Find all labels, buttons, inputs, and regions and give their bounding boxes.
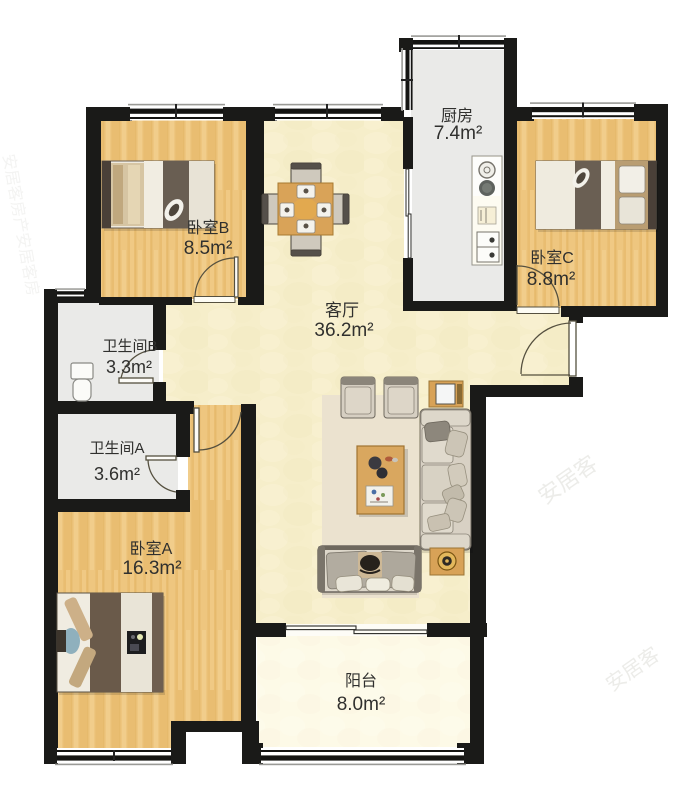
svg-text:36.2m²: 36.2m² xyxy=(314,320,373,341)
svg-text:8.5m²: 8.5m² xyxy=(184,238,233,259)
svg-text:16.3m²: 16.3m² xyxy=(122,558,181,579)
svg-text:卫生间B: 卫生间B xyxy=(102,338,157,355)
svg-text:阳台: 阳台 xyxy=(345,672,377,690)
svg-text:7.4m²: 7.4m² xyxy=(434,123,483,144)
svg-text:3.6m²: 3.6m² xyxy=(94,464,140,484)
svg-text:8.8m²: 8.8m² xyxy=(527,269,576,290)
svg-text:卧室B: 卧室B xyxy=(187,219,230,237)
svg-text:卧室C: 卧室C xyxy=(530,249,574,267)
svg-text:3.3m²: 3.3m² xyxy=(106,357,152,377)
svg-text:卧室A: 卧室A xyxy=(130,540,173,558)
svg-text:8.0m²: 8.0m² xyxy=(337,694,386,715)
svg-text:卫生间A: 卫生间A xyxy=(89,440,144,457)
svg-text:客厅: 客厅 xyxy=(325,301,359,320)
